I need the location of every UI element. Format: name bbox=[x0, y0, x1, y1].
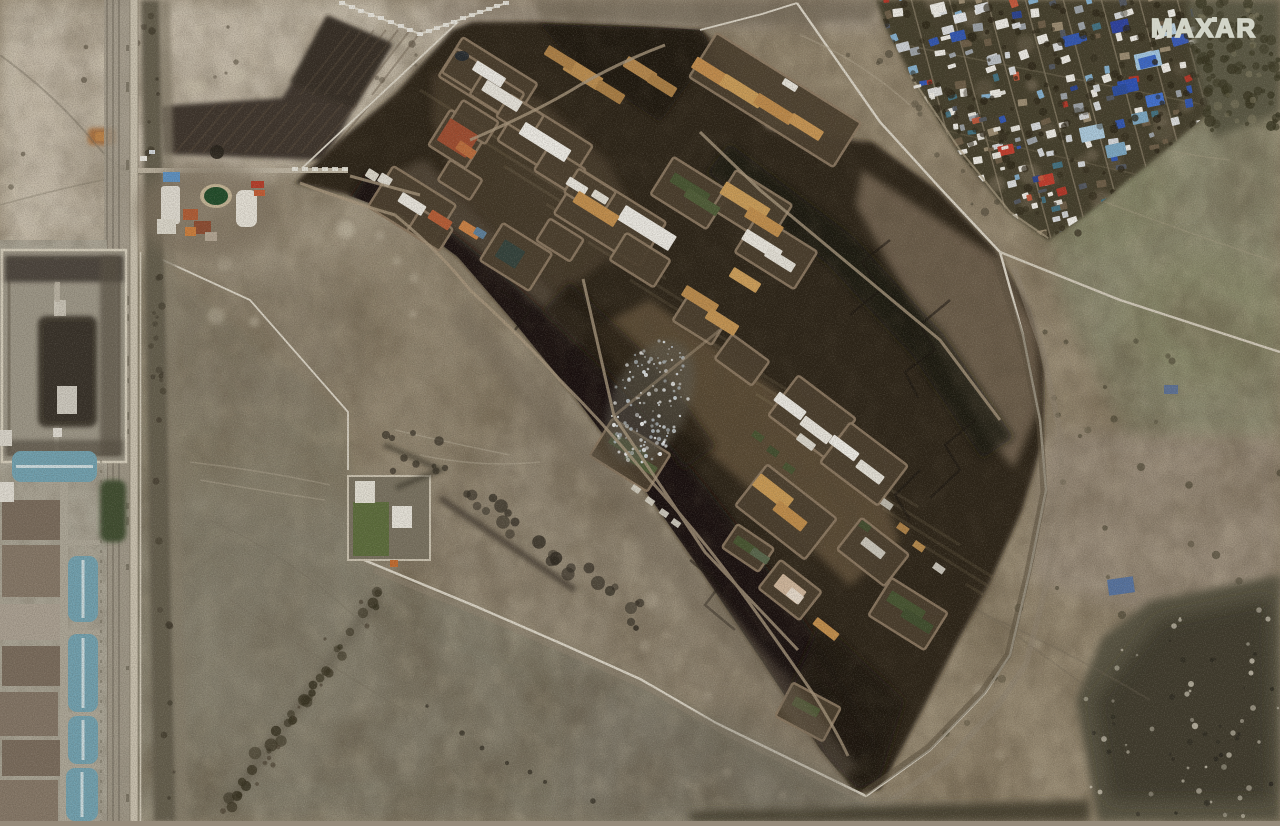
svg-text:MAXAR: MAXAR bbox=[1151, 13, 1257, 43]
